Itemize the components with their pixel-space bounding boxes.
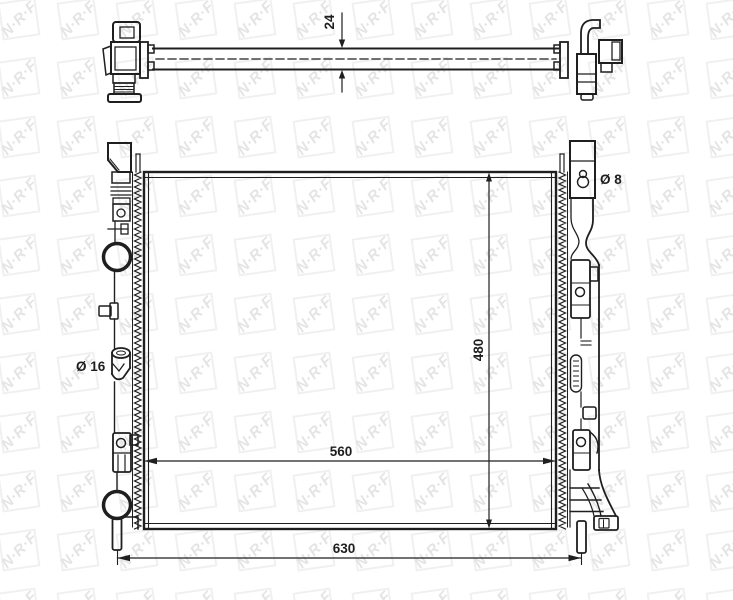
arrowhead-right-icon [569, 555, 582, 561]
left-top-bracket [108, 143, 131, 172]
dim-hole-diameter-label: Ø 8 [600, 172, 622, 187]
upper-pipe-opening [104, 244, 131, 271]
radiator-core [144, 172, 556, 529]
right-clip-upper [571, 260, 598, 318]
dim-core-width-label: 560 [330, 444, 353, 459]
core-fin-edges [133, 154, 568, 529]
top-view-body [153, 49, 558, 70]
top-view: 24 [103, 13, 622, 102]
left-mount-peg [113, 518, 122, 550]
radiator-diagram: 24 [0, 0, 733, 600]
arrowhead-left-icon [145, 458, 158, 464]
inlet-pipe [112, 348, 130, 379]
right-top-bracket [570, 141, 595, 198]
core-fin-edge-right [559, 172, 566, 529]
arrowhead-down-icon [339, 40, 345, 49]
drawing-page: N·R·FN·R·FN·R·FN·R·FN·R·FN·R·FN·R·FN·R·F… [0, 0, 733, 600]
dimension-core-height: 480 [471, 173, 492, 529]
right-mount-peg [577, 521, 586, 553]
dimension-core-width: 560 [145, 444, 556, 464]
right-clip-square [583, 407, 596, 419]
dim-overall-width-label: 630 [333, 541, 356, 556]
right-clip-lower [573, 430, 598, 470]
dim-pipe-diameter-label: Ø 16 [76, 359, 106, 374]
arrowhead-up-icon [339, 70, 345, 79]
part-number-tag [571, 355, 582, 392]
front-view: 480 560 630 Ø 16 Ø 8 [76, 141, 622, 565]
left-clip-upper [113, 204, 130, 221]
top-view-right-mount [554, 20, 622, 100]
lower-pipe-opening [104, 492, 131, 519]
right-tank [570, 141, 618, 553]
core-fin-edge-left [135, 172, 142, 529]
top-view-left-mount [103, 22, 154, 102]
dimension-overall-width: 630 [118, 541, 582, 565]
dimension-thickness: 24 [322, 13, 345, 92]
dim-core-height-label: 480 [471, 339, 486, 362]
arrowhead-left-icon [118, 555, 131, 561]
arrowhead-right-icon [543, 458, 556, 464]
dim-thickness-label: 24 [322, 14, 337, 30]
